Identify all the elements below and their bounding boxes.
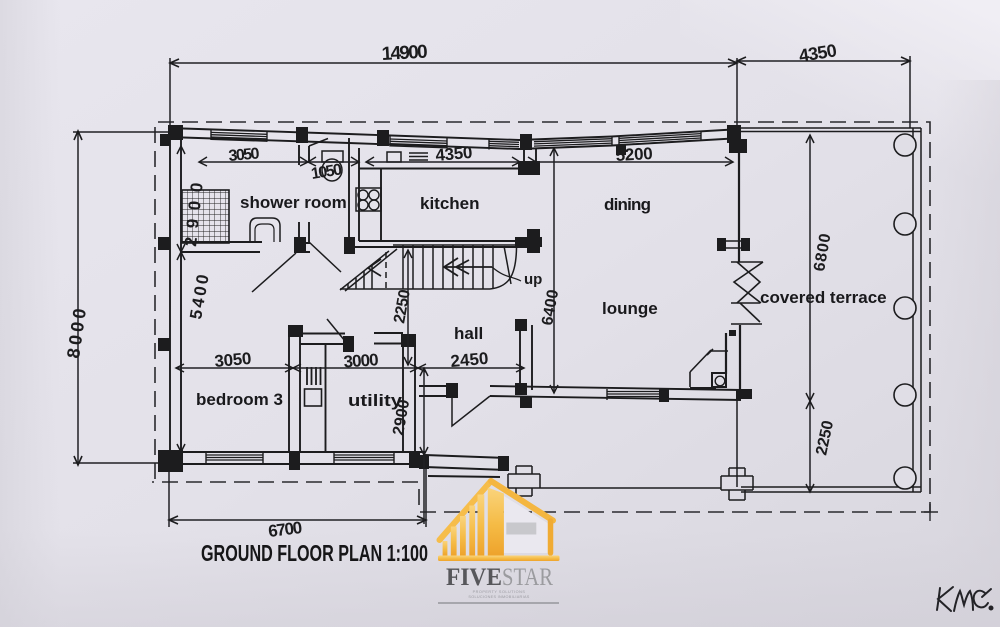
svg-text:14900: 14900 (381, 42, 428, 65)
svg-text:3050: 3050 (228, 145, 260, 165)
svg-text:PROPERTY SOLUTIONS: PROPERTY SOLUTIONS (473, 590, 526, 594)
svg-text:5200: 5200 (615, 144, 653, 165)
svg-text:GROUND FLOOR PLAN 1:100: GROUND FLOOR PLAN 1:100 (201, 540, 428, 566)
svg-text:lounge: lounge (602, 299, 658, 318)
svg-text:3000: 3000 (343, 350, 379, 371)
svg-text:up: up (524, 271, 542, 288)
svg-text:hall: hall (454, 324, 483, 343)
svg-text:bedroom 3: bedroom 3 (196, 390, 283, 409)
svg-text:FIVE: FIVE (446, 564, 502, 591)
svg-text:STAR: STAR (502, 564, 553, 591)
svg-text:shower room: shower room (240, 193, 347, 212)
svg-text:dining: dining (604, 195, 651, 214)
svg-text:4350: 4350 (435, 143, 474, 165)
svg-text:2450: 2450 (450, 349, 490, 371)
svg-text:utility: utility (348, 391, 403, 410)
svg-text:3050: 3050 (214, 349, 253, 371)
svg-text:kitchen: kitchen (420, 194, 480, 213)
svg-text:SOLUCIONES INMOBILIARIAS: SOLUCIONES INMOBILIARIAS (468, 595, 529, 599)
svg-text:covered terrace: covered terrace (760, 288, 887, 307)
